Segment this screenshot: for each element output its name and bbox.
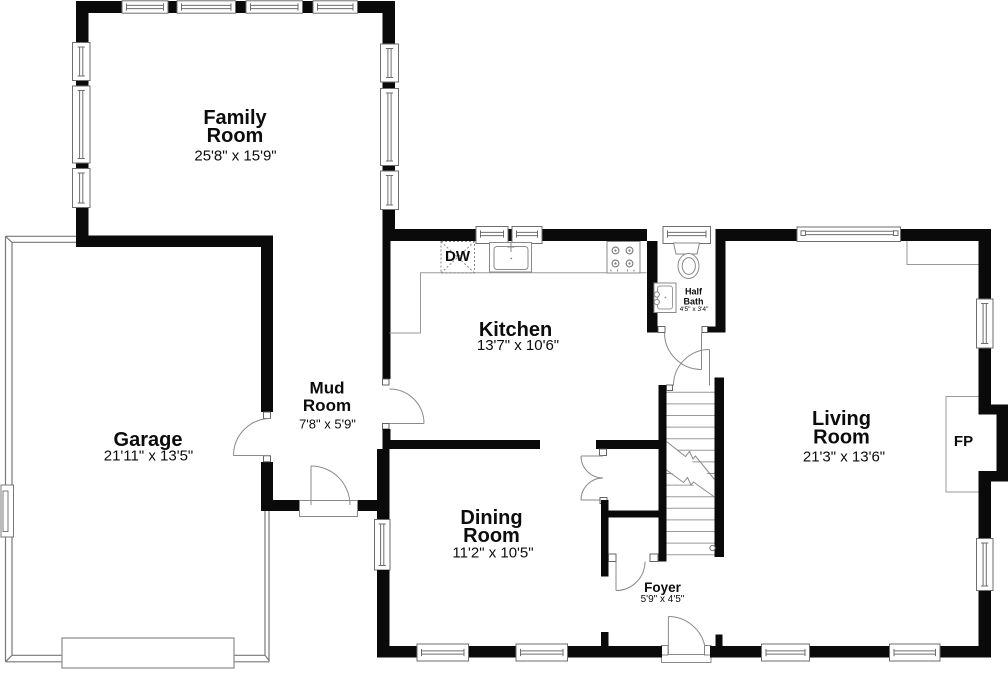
svg-text:Half: Half bbox=[685, 287, 703, 297]
svg-text:Room: Room bbox=[207, 125, 264, 147]
svg-text:21'11" x 13'5": 21'11" x 13'5" bbox=[104, 448, 194, 465]
svg-text:Mud: Mud bbox=[310, 379, 345, 398]
svg-text:Room: Room bbox=[303, 396, 351, 415]
svg-text:Foyer: Foyer bbox=[644, 580, 682, 595]
svg-text:7'8" x 5'9": 7'8" x 5'9" bbox=[299, 417, 356, 432]
svg-text:4'5" x 3'4": 4'5" x 3'4" bbox=[680, 306, 709, 313]
svg-text:5'9" x 4'5": 5'9" x 4'5" bbox=[641, 594, 685, 605]
svg-text:13'7" x 10'6": 13'7" x 10'6" bbox=[477, 337, 559, 354]
svg-text:25'8" x 15'9": 25'8" x 15'9" bbox=[194, 148, 276, 165]
svg-text:11'2" x 10'5": 11'2" x 10'5" bbox=[452, 545, 533, 562]
svg-text:FP: FP bbox=[954, 433, 973, 450]
svg-text:Bath: Bath bbox=[684, 297, 704, 307]
svg-text:Room: Room bbox=[813, 427, 870, 449]
svg-text:DW: DW bbox=[445, 248, 471, 265]
svg-text:21'3" x 13'6": 21'3" x 13'6" bbox=[803, 449, 885, 466]
